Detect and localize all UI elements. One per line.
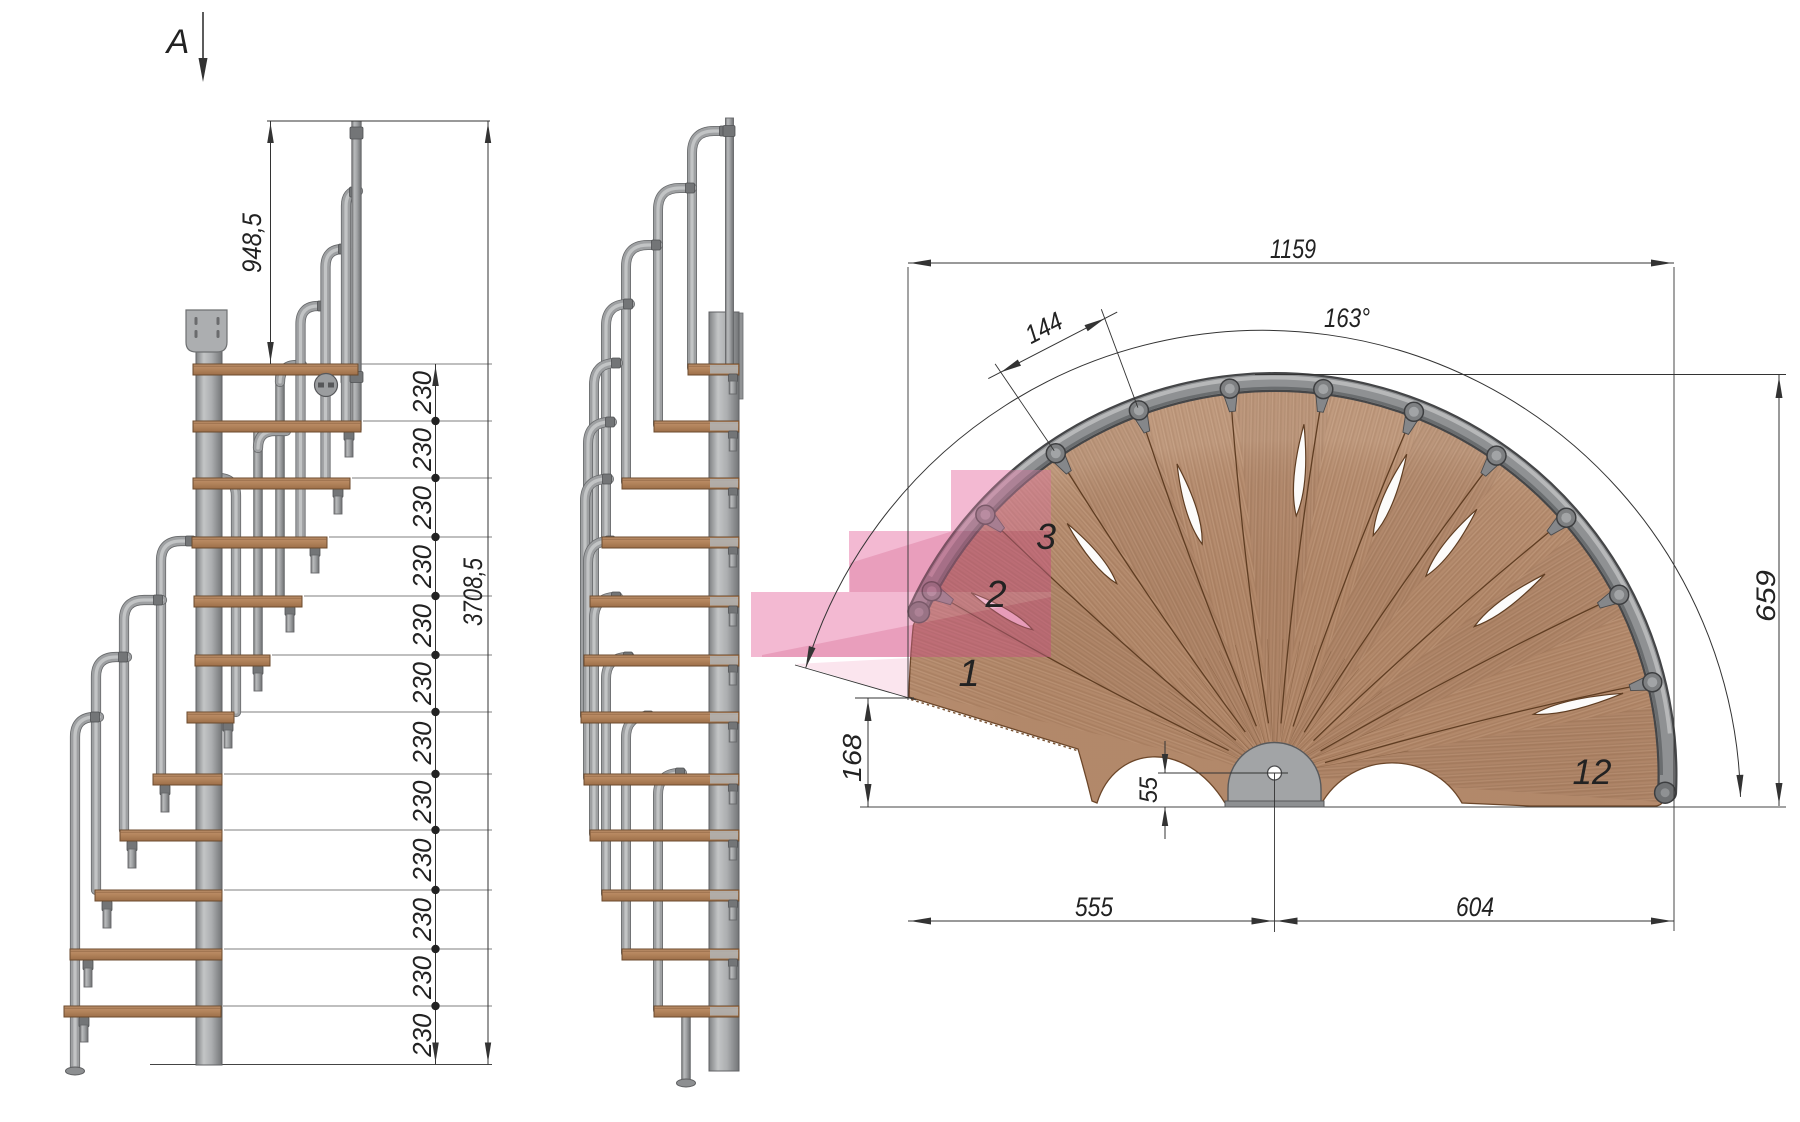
svg-text:230: 230 — [407, 427, 437, 472]
svg-text:1: 1 — [958, 653, 979, 695]
svg-text:163°: 163° — [1324, 303, 1370, 333]
svg-text:230: 230 — [407, 485, 437, 530]
svg-text:948,5: 948,5 — [237, 212, 267, 273]
svg-text:230: 230 — [407, 544, 437, 589]
svg-text:230: 230 — [407, 603, 437, 648]
svg-text:659: 659 — [1751, 570, 1781, 622]
svg-text:230: 230 — [407, 661, 437, 706]
svg-text:230: 230 — [407, 721, 437, 766]
svg-text:230: 230 — [407, 897, 437, 942]
svg-text:555: 555 — [1075, 892, 1114, 922]
svg-text:3708,5: 3708,5 — [458, 557, 488, 626]
svg-text:1159: 1159 — [1270, 234, 1316, 264]
svg-text:12: 12 — [1573, 753, 1612, 792]
svg-text:3: 3 — [1036, 516, 1056, 557]
svg-text:230: 230 — [407, 955, 437, 1000]
svg-text:2: 2 — [984, 574, 1006, 616]
svg-text:604: 604 — [1456, 892, 1494, 922]
svg-text:55: 55 — [1135, 777, 1163, 803]
svg-text:A: A — [165, 23, 190, 61]
svg-text:230: 230 — [407, 1013, 437, 1058]
svg-text:230: 230 — [407, 370, 437, 415]
svg-text:168: 168 — [837, 733, 867, 782]
svg-text:230: 230 — [407, 838, 437, 883]
svg-text:230: 230 — [407, 780, 437, 825]
